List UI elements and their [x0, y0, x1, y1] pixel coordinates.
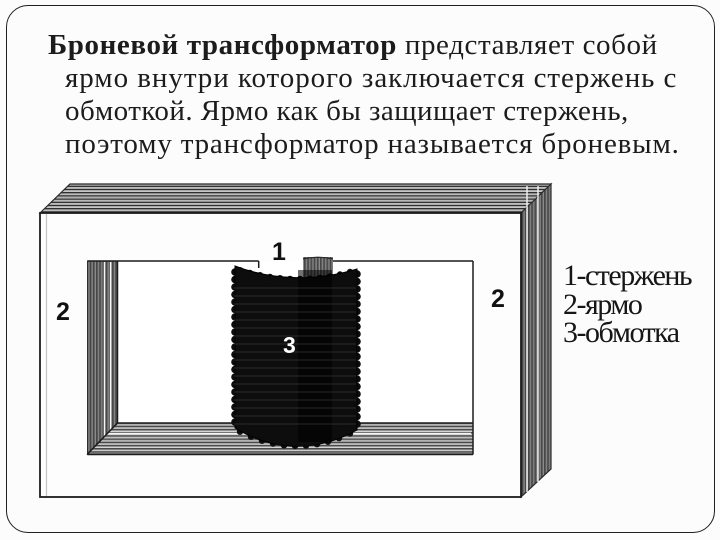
- svg-text:3: 3: [283, 332, 296, 358]
- svg-text:2: 2: [491, 285, 505, 313]
- svg-text:1: 1: [272, 238, 286, 266]
- svg-text:2: 2: [56, 298, 70, 326]
